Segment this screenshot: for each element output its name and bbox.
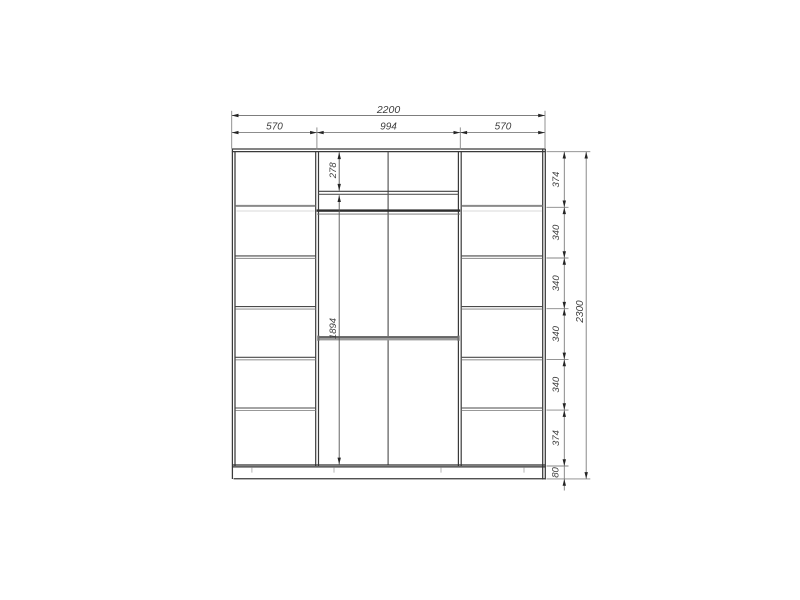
- svg-text:278: 278: [328, 162, 339, 180]
- svg-text:374: 374: [551, 172, 562, 188]
- svg-text:570: 570: [266, 122, 283, 133]
- svg-text:340: 340: [551, 275, 562, 292]
- svg-text:340: 340: [551, 376, 562, 393]
- svg-text:80: 80: [551, 467, 562, 478]
- svg-text:2300: 2300: [575, 300, 586, 324]
- svg-text:994: 994: [380, 122, 397, 133]
- svg-text:340: 340: [551, 224, 562, 241]
- svg-text:2200: 2200: [376, 104, 401, 116]
- svg-text:570: 570: [495, 122, 512, 133]
- svg-text:1894: 1894: [328, 318, 339, 339]
- svg-text:340: 340: [551, 325, 562, 342]
- svg-text:374: 374: [551, 430, 562, 446]
